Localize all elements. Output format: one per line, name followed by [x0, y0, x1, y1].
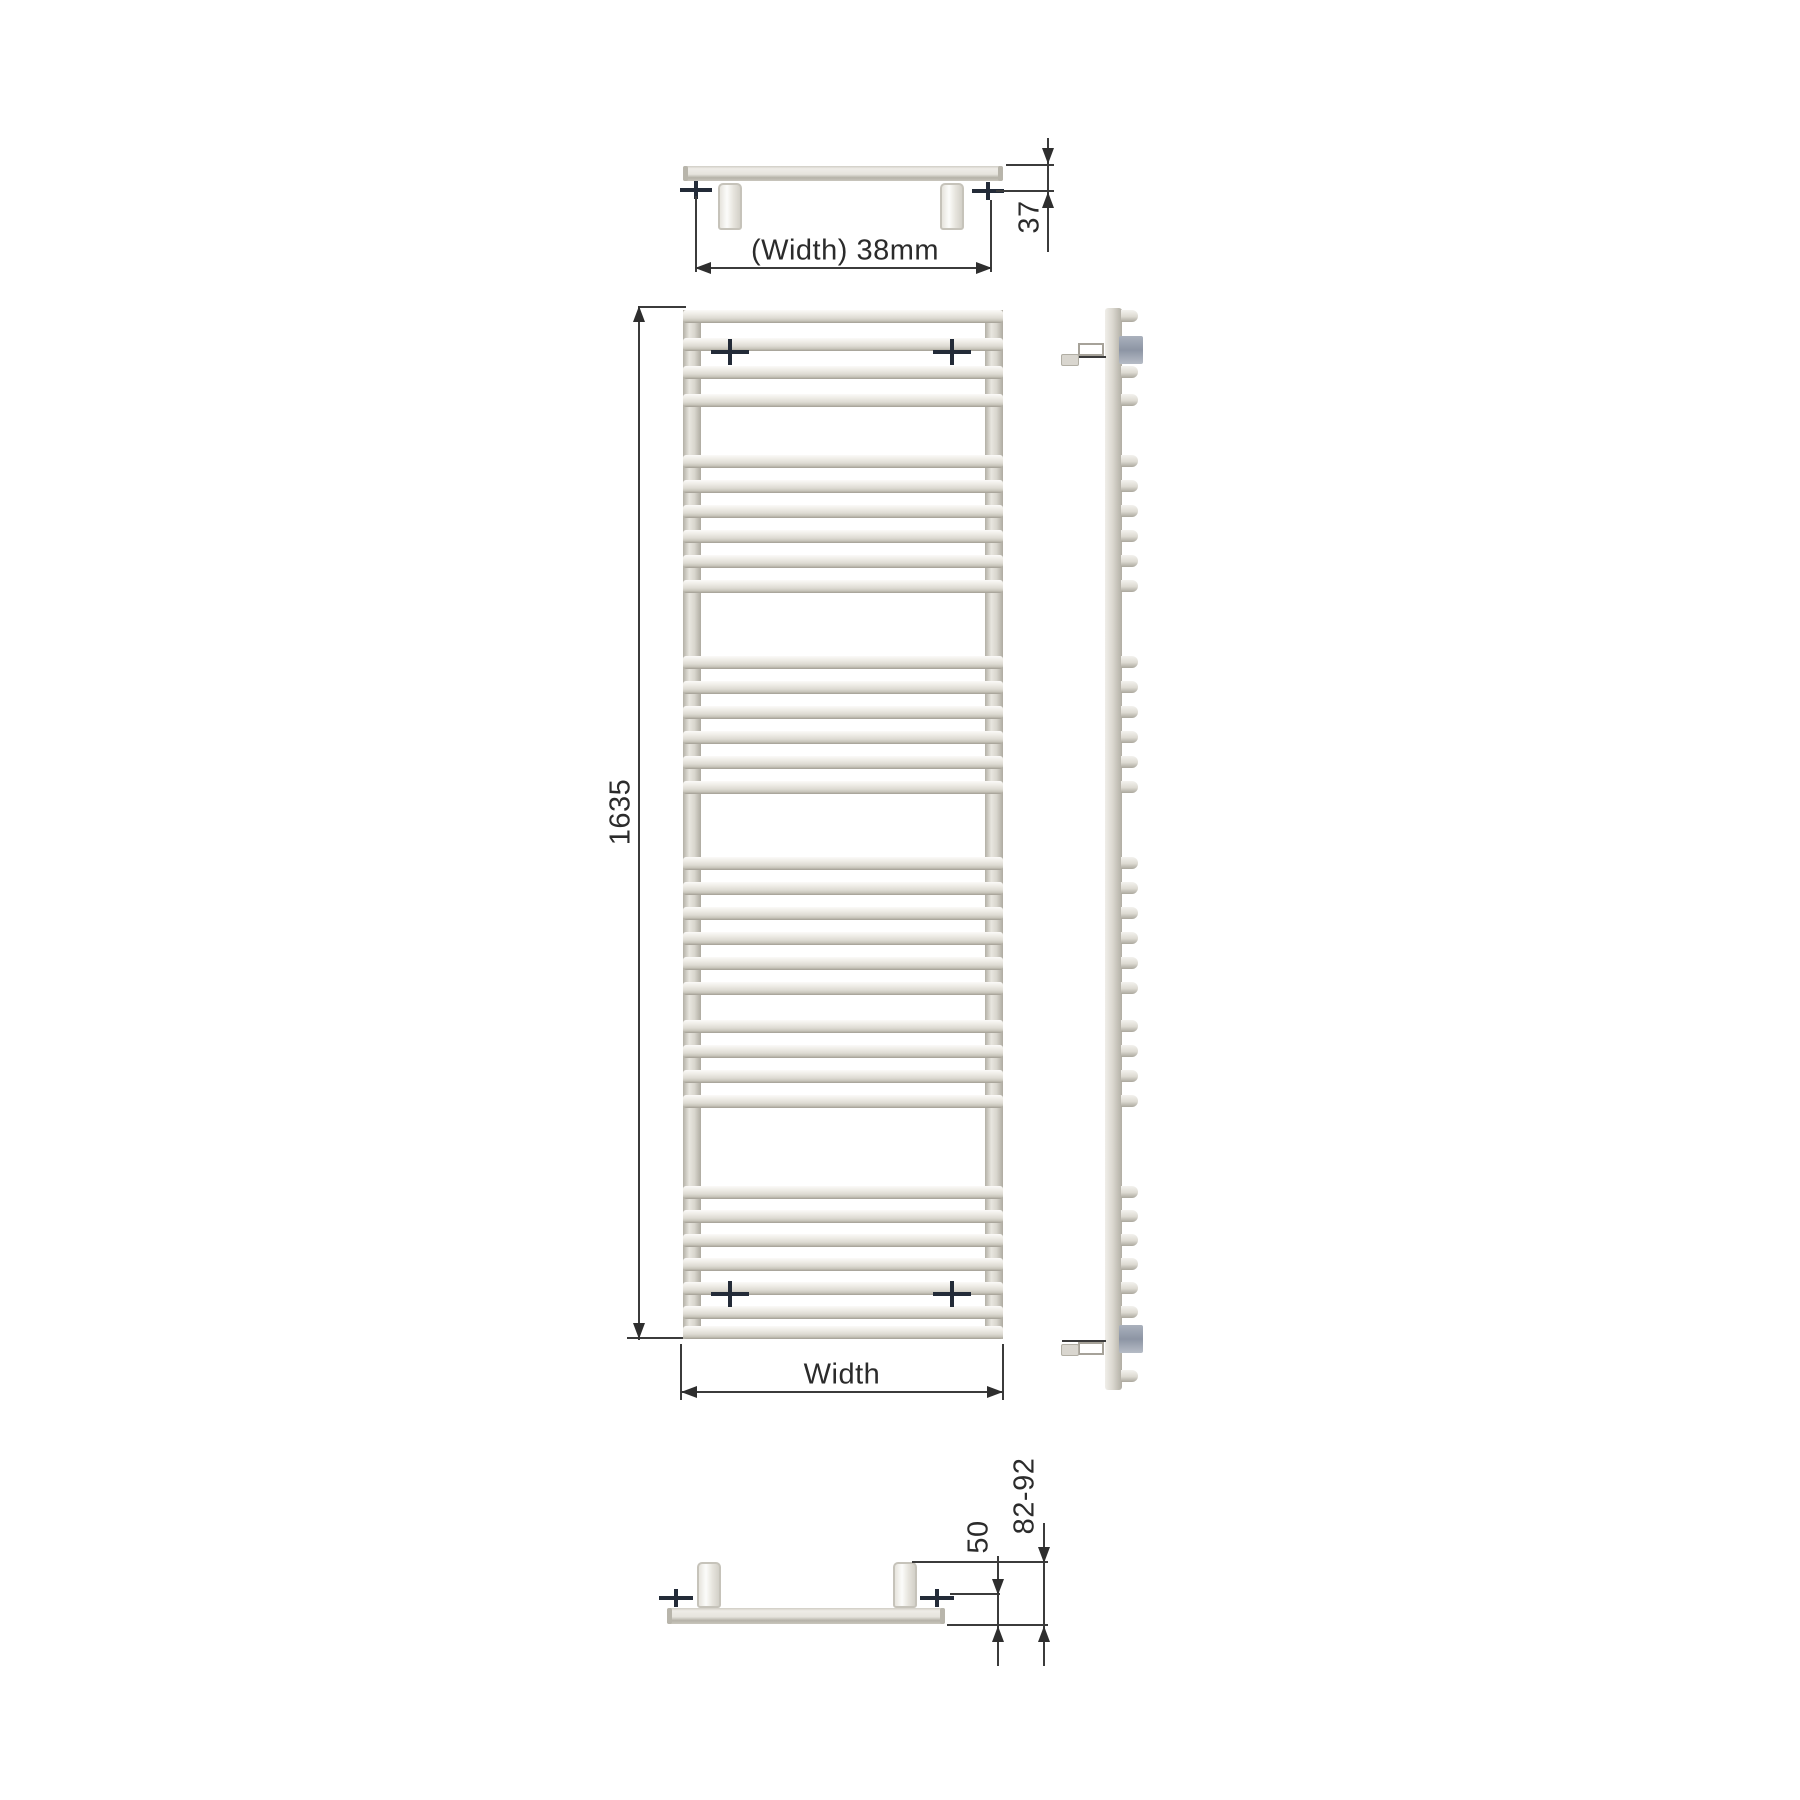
rung-end-stub [1121, 882, 1138, 894]
bottom-view-bar-end-cap [940, 1608, 945, 1624]
front-view-width-dimension-label: Width [804, 1359, 881, 1392]
radiator-rung [683, 882, 1003, 895]
wall-bracket-stub [1061, 1344, 1079, 1356]
rung-end-stub [1121, 756, 1138, 768]
rung-end-stub [1121, 580, 1138, 592]
radiator-rung [683, 907, 1003, 920]
radiator-rung [683, 932, 1003, 945]
radiator-rung [683, 530, 1003, 543]
rung-end-stub [1121, 1070, 1138, 1082]
radiator-rung [683, 656, 1003, 669]
rung-end-stub [1121, 505, 1138, 517]
top-view-depth-dimension-label: 37 [1014, 200, 1047, 233]
dimension-arrowhead [1042, 148, 1054, 164]
dimension-line [1043, 1523, 1045, 1666]
rung-end-stub [1121, 394, 1138, 406]
mounting-point-cross-icon [935, 1589, 939, 1607]
rung-end-stub [1121, 706, 1138, 718]
rung-end-stub [1121, 982, 1138, 994]
radiator-rung [683, 857, 1003, 870]
wall-bracket-plate [1078, 343, 1104, 356]
radiator-rung [683, 781, 1003, 794]
rung-end-stub [1121, 681, 1138, 693]
rung-end-stub [1121, 1095, 1138, 1107]
bottom-view-bar [667, 1608, 945, 1624]
dimension-arrowhead [1038, 1547, 1050, 1563]
rung-end-stub [1121, 1370, 1138, 1382]
valve-connector [718, 183, 742, 230]
valve-connector [940, 183, 964, 230]
rung-end-stub [1121, 555, 1138, 567]
radiator-rung [683, 505, 1003, 518]
wall-bracket-stub [1061, 354, 1079, 366]
radiator-rung [683, 1258, 1003, 1271]
rung-end-stub [1121, 530, 1138, 542]
dimension-line [638, 306, 640, 1340]
radiator-rung [683, 1020, 1003, 1033]
radiator-rung [683, 706, 1003, 719]
rung-end-stub [1121, 857, 1138, 869]
radiator-rung [683, 1095, 1003, 1108]
radiator-rung [683, 731, 1003, 744]
side-profile-bar [1105, 308, 1122, 1390]
radiator-rung [683, 480, 1003, 493]
dimension-arrowhead [633, 306, 645, 322]
dimension-arrowhead [633, 1323, 645, 1339]
rung-end-stub [1121, 1258, 1138, 1270]
radiator-rung [683, 310, 1003, 323]
radiator-rung [683, 1326, 1003, 1339]
radiator-rung [683, 1045, 1003, 1058]
top-view-bar-end-cap [683, 166, 688, 181]
front-view-height-dimension-label: 1635 [605, 779, 638, 846]
radiator-rung [683, 580, 1003, 593]
rung-end-stub [1121, 366, 1138, 378]
radiator-rung [683, 1186, 1003, 1199]
radiator-rung [683, 1070, 1003, 1083]
rung-end-stub [1121, 907, 1138, 919]
rung-end-stub [1121, 480, 1138, 492]
mounting-point-cross-icon [950, 1281, 954, 1307]
top-view-bar [683, 166, 1003, 181]
rung-end-stub [1121, 1282, 1138, 1294]
top-view-width-dimension-label: (Width) 38mm [751, 235, 939, 268]
top-view-bar-end-cap [998, 166, 1003, 181]
rung-end-stub [1121, 1020, 1138, 1032]
mounting-point-cross-icon [674, 1589, 678, 1607]
rung-end-stub [1121, 1045, 1138, 1057]
radiator-technical-drawing: (Width) 38mm 37 1635 Width 50 82-92 [0, 0, 1800, 1800]
valve-connector [893, 1562, 917, 1608]
rung-end-stub [1121, 957, 1138, 969]
dimension-arrowhead [976, 262, 992, 274]
rung-end-stub [1121, 781, 1138, 793]
mounting-point-cross-icon [986, 182, 990, 200]
radiator-rung [683, 1306, 1003, 1319]
radiator-rung [683, 756, 1003, 769]
mounting-point-cross-icon [728, 1281, 732, 1307]
bottom-view-bar-end-cap [667, 1608, 672, 1624]
valve-connector [697, 1562, 721, 1608]
wall-bracket-block [1119, 336, 1143, 364]
dimension-arrowhead [681, 1386, 697, 1398]
bottom-view-wall-distance-label: 50 [963, 1520, 996, 1553]
radiator-rung [683, 1210, 1003, 1223]
rung-end-stub [1121, 656, 1138, 668]
radiator-rung [683, 982, 1003, 995]
rung-end-stub [1121, 1234, 1138, 1246]
dimension-arrowhead [992, 1579, 1004, 1595]
rung-end-stub [1121, 1186, 1138, 1198]
dimension-arrowhead [1038, 1626, 1050, 1642]
dimension-line [638, 306, 686, 308]
rung-end-stub [1121, 731, 1138, 743]
dimension-line [997, 1556, 999, 1666]
rung-end-stub [1121, 932, 1138, 944]
rung-end-stub [1121, 1210, 1138, 1222]
radiator-rung [683, 957, 1003, 970]
mounting-point-cross-icon [728, 339, 732, 365]
dimension-arrowhead [992, 1626, 1004, 1642]
rung-end-stub [1121, 455, 1138, 467]
dimension-arrowhead [695, 262, 711, 274]
radiator-rung [683, 455, 1003, 468]
wall-bracket-plate [1078, 1342, 1104, 1355]
radiator-rung [683, 1234, 1003, 1247]
dimension-arrowhead [987, 1386, 1003, 1398]
rung-end-stub [1121, 1306, 1138, 1318]
wall-bracket-block [1119, 1325, 1143, 1353]
rung-end-stub [1121, 310, 1138, 322]
radiator-rung [683, 555, 1003, 568]
dimension-line [912, 1561, 1048, 1563]
mounting-point-cross-icon [950, 339, 954, 365]
radiator-rung [683, 681, 1003, 694]
radiator-rung [683, 366, 1003, 379]
radiator-rung [683, 394, 1003, 407]
dimension-line [695, 196, 697, 272]
bottom-view-depth-range-label: 82-92 [1009, 1458, 1042, 1535]
